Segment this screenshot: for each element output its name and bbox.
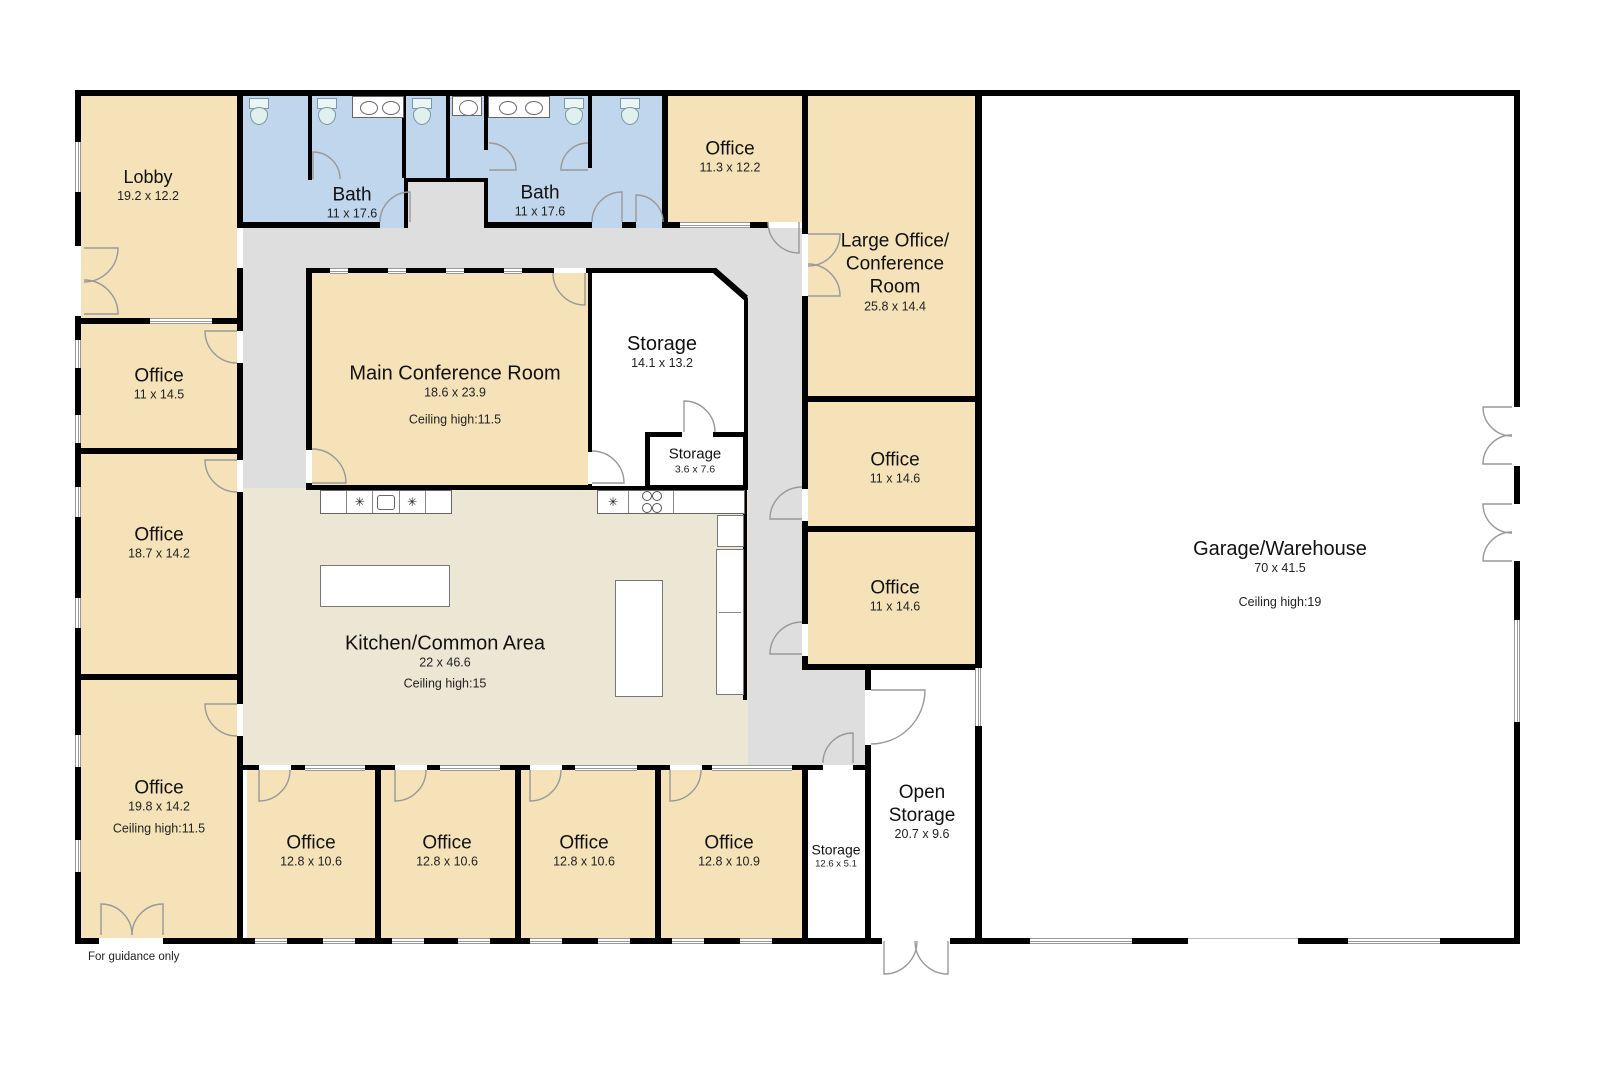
room-office-bottom-1-label: Office 12.8 x 10.6 [280,832,342,871]
wall-segment [75,674,243,680]
wall-segment [592,268,718,273]
window [446,268,464,274]
wall-segment [375,770,381,938]
burner-icon: ✳ [400,491,426,513]
wall-segment [75,448,243,454]
window [440,765,500,771]
wall-segment [306,268,312,450]
wall-segment [802,664,975,670]
wall-segment [975,726,982,938]
door-opening [75,246,81,316]
window [75,598,81,628]
sink-icon [382,101,400,115]
kitchen-island [320,565,450,607]
wall-segment [243,222,380,228]
window [388,268,406,274]
door-opening [99,938,163,944]
guidance-note: For guidance only [88,951,179,963]
wall-segment [75,90,81,944]
window [150,318,212,324]
door-opening [237,331,243,363]
garage-door-opening [1188,938,1298,945]
window [680,222,750,228]
window [330,268,348,274]
room-office-left-1-label: Office 11 x 14.5 [134,365,185,404]
bath-sink-counter [488,96,550,118]
sink-icon [525,101,543,115]
wall-segment [975,96,982,668]
window [75,415,81,443]
wall-segment [802,526,975,532]
toilet-icon [411,98,433,126]
room-lobby-label: Lobby 19.2 x 12.2 [117,167,179,205]
room-storage-main-label: Storage 14.1 x 13.2 [627,332,697,372]
corner-sink [452,96,482,116]
window [75,735,81,767]
window [1348,938,1440,944]
door-opening [1514,504,1520,561]
door-opening [865,690,871,745]
toilet-icon [619,98,641,126]
window [672,938,704,944]
room-storage-small-label: Storage 3.6 x 7.6 [669,445,722,476]
window [530,938,562,944]
room-office-top-label: Office 11.3 x 12.2 [700,138,761,177]
kitchen-sink-icon [373,491,399,513]
room-kitchen-label: Kitchen/Common Area 22 x 46.6 Ceiling hi… [345,631,545,690]
room-office-right-1-label: Office 11 x 14.6 [870,449,921,488]
room-office-bottom-3-label: Office 12.8 x 10.6 [553,832,615,871]
wall-segment [446,96,450,182]
wall-segment [802,765,808,938]
window [598,938,630,944]
toilet-icon [316,98,338,126]
door-opening [237,460,243,492]
wall-segment [662,96,668,228]
wall-segment [75,90,1520,96]
window [740,938,772,944]
wall-segment [743,432,748,490]
room-garage-label: Garage/Warehouse 70 x 41.5 Ceiling high:… [1193,537,1367,609]
sink-icon [459,100,478,116]
room-office-left-2-label: Office 18.7 x 14.2 [128,524,190,563]
door-opening [237,704,243,736]
window [1514,620,1520,722]
window [504,268,522,274]
sink-icon [360,101,378,115]
toilet-icon [563,98,585,126]
wall-segment [802,396,975,402]
wall-segment [622,222,636,228]
room-office-right-2-label: Office 11 x 14.6 [870,577,921,616]
window [75,487,81,517]
wall-segment [404,178,488,182]
wall-segment [645,432,650,490]
floor-plan: ✳✳✳ Lobby 19.2 x 12.2 Bath 11 x 17.6 Bat… [0,0,1600,1065]
kitchen-counter: ✳✳ [320,490,452,514]
window [392,938,424,944]
door-opening [1514,407,1520,466]
room-storage-hall-label: Storage 12.6 x 5.1 [811,842,860,871]
counter-cell [426,491,451,513]
wall-segment [802,96,808,234]
wall-segment [484,178,488,228]
wall-segment [515,770,521,938]
wall-segment [308,96,312,180]
walls-layer [0,0,1600,1065]
wall-segment [865,745,871,938]
dishwasher-icon [717,515,744,547]
door-opening [882,938,950,944]
window [255,938,287,944]
room-large-office-label: Large Office/ Conference Room 25.8 x 14.… [841,229,949,314]
room-bath-right-label: Bath 11 x 17.6 [515,182,566,221]
window [1030,938,1132,944]
window [75,340,81,368]
bath-sink-counter [352,96,404,118]
wall-segment [588,96,592,168]
window [458,938,490,944]
burner-icon: ✳ [347,491,373,513]
window [575,765,637,771]
wall-segment [655,770,661,938]
kitchen-island [615,580,663,697]
room-office-bottom-4-label: Office 12.8 x 10.9 [698,832,760,871]
wall-segment [404,178,408,228]
wall-segment [645,432,682,437]
counter-cell [321,491,347,513]
wall-segment [802,296,808,489]
wall-segment [75,938,1520,944]
wall-segment [865,667,871,690]
window [975,668,981,726]
window [305,765,365,771]
room-office-bottom-2-label: Office 12.8 x 10.6 [416,832,478,871]
room-main-conference-label: Main Conference Room 18.6 x 23.9 Ceiling… [349,361,560,426]
window [75,142,81,192]
kitchen-counter: ✳ [597,490,745,514]
room-office-left-3-label: Office 19.8 x 14.2 Ceiling high:11.5 [113,777,205,836]
cooktop-icon [629,491,674,513]
room-open-storage-label: Open Storage 20.7 x 9.6 [889,781,956,843]
toilet-icon [248,98,270,126]
window [712,765,792,771]
window [75,840,81,872]
window [323,938,355,944]
door-opening [237,228,243,268]
wall-segment [802,521,808,624]
burner-icon: ✳ [598,491,629,513]
wall-segment [243,765,259,770]
counter-cell [674,491,744,513]
sink-icon [499,101,517,115]
wall-segment [588,268,592,452]
wall-segment [853,765,871,770]
wall-segment [488,222,592,228]
room-bath-left-label: Bath 11 x 17.6 [327,184,378,223]
fridge-icon [716,549,744,695]
